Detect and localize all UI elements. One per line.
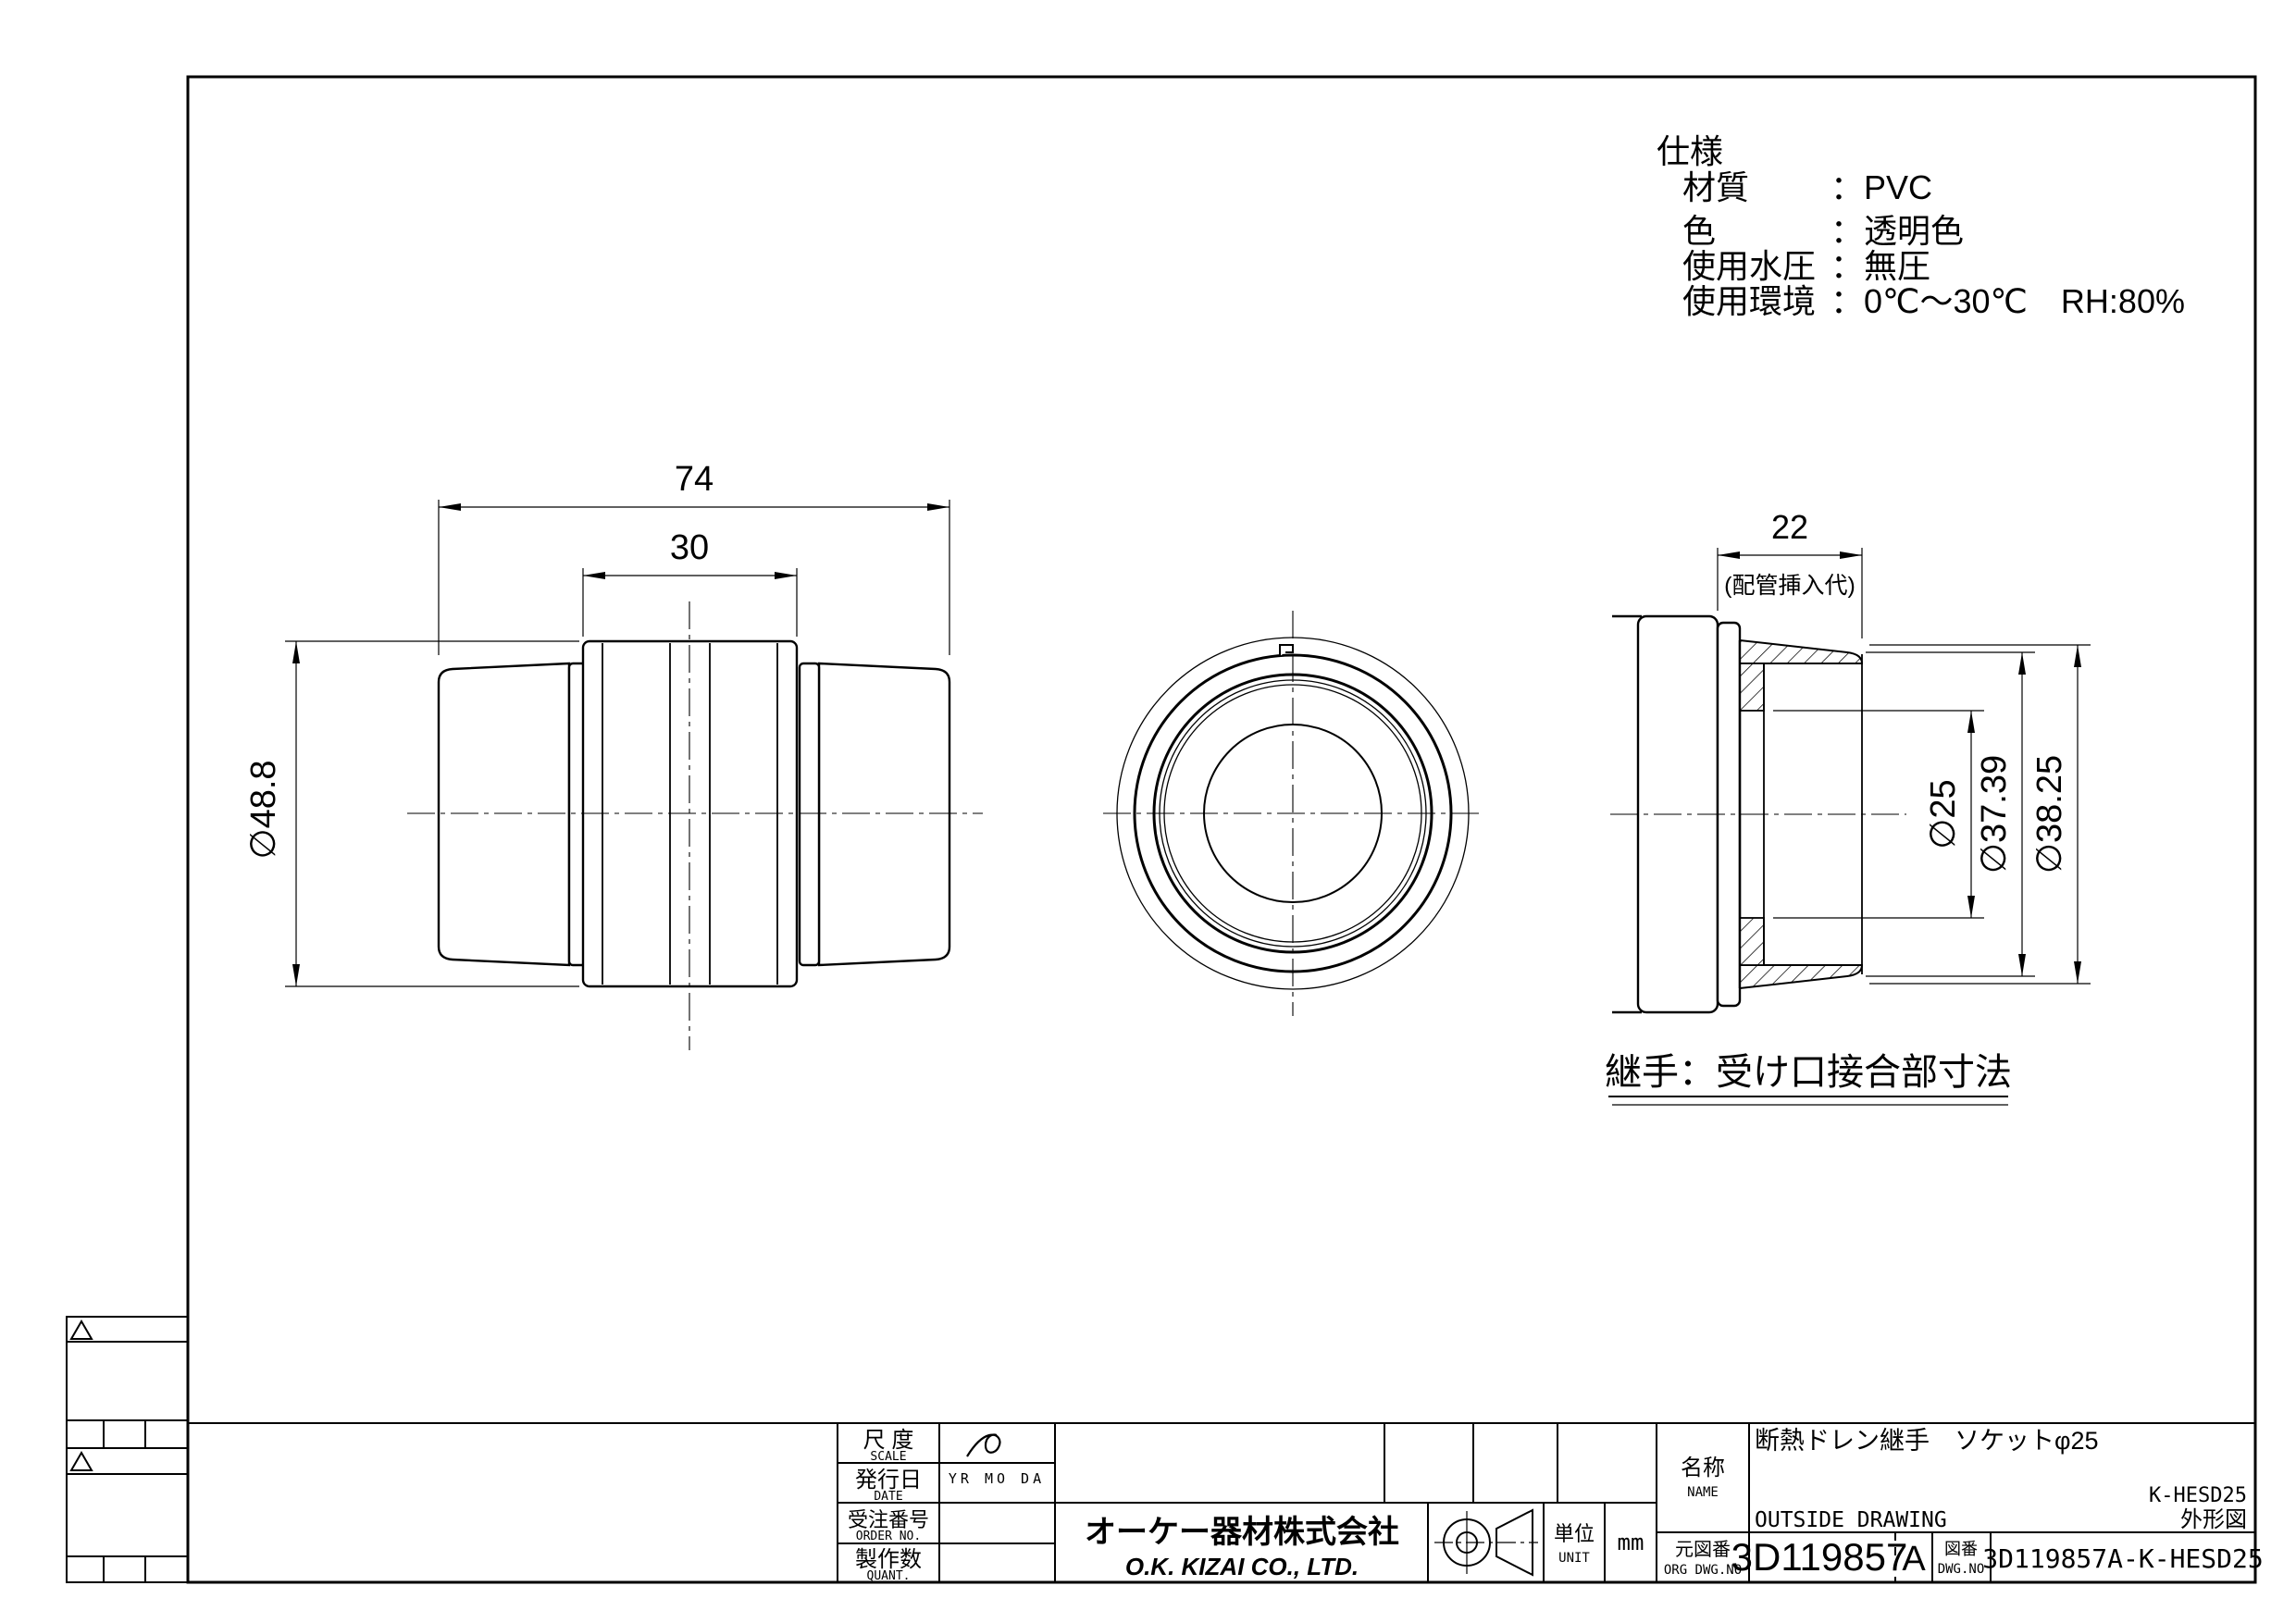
scale-label-en: SCALE bbox=[870, 1450, 906, 1464]
dwg-label: 図番 bbox=[1944, 1540, 1978, 1558]
socket-wall-top bbox=[1740, 640, 1862, 663]
scale-handwritten-mark bbox=[967, 1435, 999, 1456]
right-insulation-collar bbox=[800, 663, 819, 965]
spec-row-color: 色 ： 透明色 bbox=[1682, 212, 1964, 250]
spec-colon: ： bbox=[1831, 168, 1864, 206]
date-cell: 発行日 DATE YR MO DA bbox=[855, 1468, 1045, 1504]
dim-label-bore: ∅25 bbox=[1924, 779, 1963, 849]
scale-label: 尺 度 bbox=[863, 1428, 914, 1453]
side-view bbox=[1103, 611, 1483, 1016]
unit-value: mm bbox=[1618, 1530, 1644, 1555]
dim-label-body: 30 bbox=[670, 528, 709, 567]
dwg-cell: 図番 DWG.NO 3D119857A-K-HESD25 bbox=[1938, 1540, 2264, 1577]
unit-label: 単位 bbox=[1554, 1522, 1595, 1545]
left-insulation-body bbox=[439, 663, 569, 965]
revision-blocks bbox=[67, 1317, 188, 1582]
dim-label-socket: ∅37.39 bbox=[1975, 755, 2014, 873]
drawing-type: OUTSIDE DRAWING bbox=[1755, 1508, 1947, 1532]
date-label: 発行日 bbox=[855, 1468, 922, 1493]
section-caption: 継手：受け口接合部寸法 bbox=[1605, 1052, 2012, 1105]
dwg-label-en: DWG.NO bbox=[1938, 1562, 1985, 1577]
org-dwg-cell: 元図番 ORG DWG.NO 3D119857 A bbox=[1664, 1535, 1926, 1579]
front-view: 74 30 ∅48.8 bbox=[244, 460, 983, 1050]
drawing-kind: 外形図 bbox=[2180, 1507, 2247, 1532]
spec-value: 無圧 bbox=[1864, 247, 1930, 285]
org-dwg-label-en: ORG DWG.NO bbox=[1664, 1563, 1742, 1578]
dimension-22: 22 (配管挿入代) bbox=[1718, 508, 1862, 638]
spec-row-material: 材質 ： PVC bbox=[1682, 168, 1932, 206]
section-view: 22 (配管挿入代) ∅25 ∅37.39 ∅38. bbox=[1605, 508, 2091, 1105]
revision-triangle-icon bbox=[71, 1453, 92, 1470]
title-block: 尺 度 SCALE 発行日 DATE YR MO DA 受注番号 ORDER N… bbox=[188, 1423, 2264, 1583]
dwg-value: 3D119857A-K-HESD25 bbox=[1982, 1543, 2263, 1574]
spec-label: 使用環境 bbox=[1682, 282, 1816, 320]
pipe-stop-top bbox=[1740, 663, 1764, 711]
unit-label-en: UNIT bbox=[1558, 1551, 1590, 1566]
name-label: 名称 bbox=[1681, 1456, 1725, 1481]
spec-value: 透明色 bbox=[1864, 212, 1964, 250]
product-name: 断熱ドレン継手 ソケットφ25 bbox=[1755, 1427, 2099, 1455]
pipe-stop-bottom bbox=[1740, 918, 1764, 965]
spec-value: 0℃～30℃ RH:80% bbox=[1864, 282, 2185, 320]
dim-note-insert: (配管挿入代) bbox=[1724, 573, 1855, 599]
caption-text: 継手：受け口接合部寸法 bbox=[1605, 1052, 2012, 1093]
drawing-sheet: 仕様 材質 ： PVC 色 ： 透明色 使用水圧 ： 無圧 使用環境 ： 0℃～… bbox=[0, 0, 2296, 1623]
spec-label: 色 bbox=[1682, 212, 1716, 250]
technical-drawing: 仕様 材質 ： PVC 色 ： 透明色 使用水圧 ： 無圧 使用環境 ： 0℃～… bbox=[0, 0, 2296, 1623]
quantity-label-en: QUANT. bbox=[867, 1569, 911, 1583]
name-label-en: NAME bbox=[1687, 1485, 1719, 1500]
dim-label-insert: 22 bbox=[1771, 508, 1808, 546]
unit-cell: 単位 UNIT mm bbox=[1554, 1522, 1644, 1566]
spec-colon: ： bbox=[1831, 212, 1864, 250]
spec-colon: ： bbox=[1831, 282, 1864, 320]
scale-cell: 尺 度 SCALE bbox=[863, 1428, 1000, 1464]
dim-label-od: ∅48.8 bbox=[244, 760, 283, 859]
quantity-label: 製作数 bbox=[855, 1547, 922, 1572]
projection-symbol-icon bbox=[1434, 1510, 1538, 1575]
spec-label: 材質 bbox=[1682, 168, 1749, 206]
date-value: YR MO DA bbox=[949, 1470, 1045, 1487]
spec-value: PVC bbox=[1864, 168, 1932, 206]
revision-letter: A bbox=[1902, 1540, 1926, 1579]
spec-title: 仕様 bbox=[1657, 132, 1723, 170]
org-dwg-value: 3D119857 bbox=[1731, 1535, 1908, 1579]
right-insulation-body bbox=[819, 663, 949, 965]
order-cell: 受注番号 ORDER NO. bbox=[848, 1508, 929, 1543]
spec-row-environment: 使用環境 ： 0℃～30℃ RH:80% bbox=[1682, 282, 2185, 320]
spec-colon: ： bbox=[1831, 247, 1864, 285]
date-label-en: DATE bbox=[874, 1490, 902, 1504]
spec-block: 仕様 材質 ： PVC 色 ： 透明色 使用水圧 ： 無圧 使用環境 ： 0℃～… bbox=[1657, 132, 2185, 320]
company-cell: オーケー器材株式会社 O.K. KIZAI CO., LTD. bbox=[1085, 1515, 1399, 1580]
spec-label: 使用水圧 bbox=[1682, 247, 1816, 285]
dim-label-overall: 74 bbox=[675, 460, 714, 499]
spec-row-pressure: 使用水圧 ： 無圧 bbox=[1682, 247, 1930, 285]
quantity-cell: 製作数 QUANT. bbox=[855, 1547, 922, 1583]
model-code: K-HESD25 bbox=[2149, 1484, 2247, 1507]
company-name-ja: オーケー器材株式会社 bbox=[1085, 1515, 1399, 1550]
order-label-en: ORDER NO. bbox=[856, 1530, 921, 1543]
socket-wall-bottom bbox=[1740, 965, 1862, 988]
order-label: 受注番号 bbox=[848, 1508, 929, 1531]
revision-triangle-icon bbox=[71, 1321, 92, 1339]
dim-label-section-od: ∅38.25 bbox=[2030, 755, 2069, 873]
org-dwg-label: 元図番 bbox=[1675, 1539, 1731, 1560]
company-name-en: O.K. KIZAI CO., LTD. bbox=[1125, 1553, 1359, 1580]
name-cell: 名称 NAME 断熱ドレン継手 ソケットφ25 OUTSIDE DRAWING … bbox=[1681, 1427, 2247, 1532]
